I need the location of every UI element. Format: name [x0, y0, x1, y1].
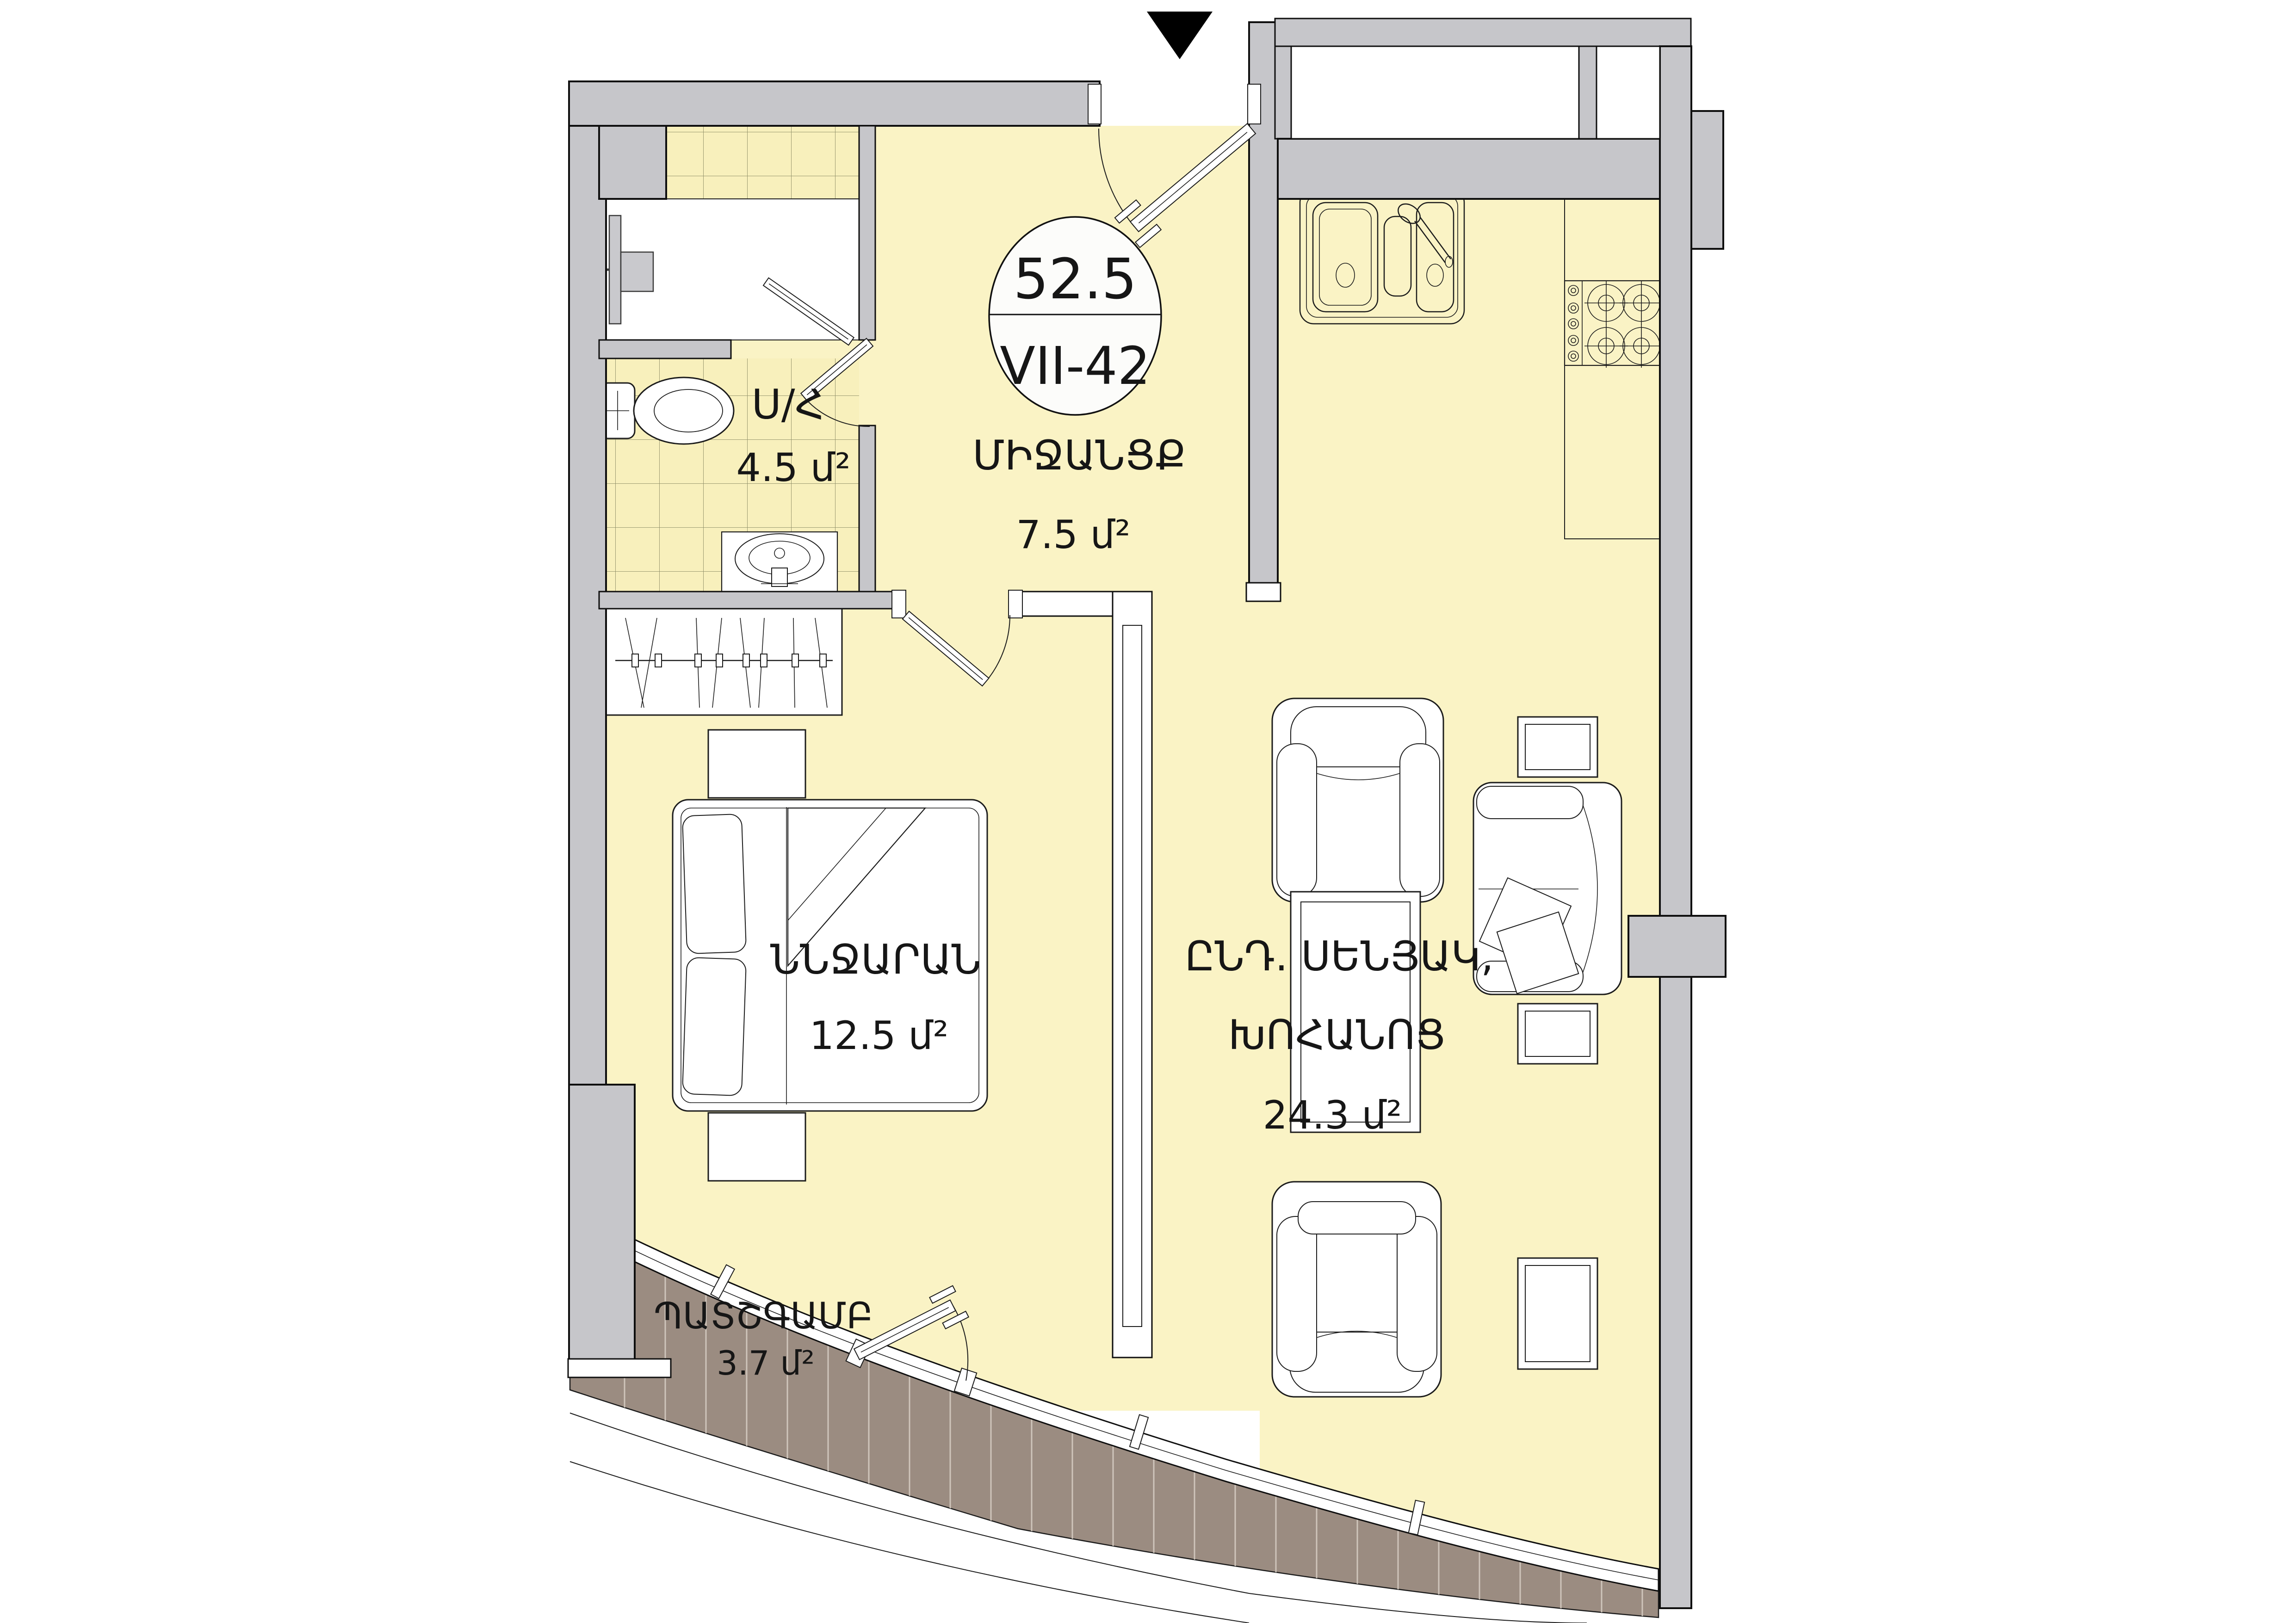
badge-unit-code: VII-42 [1000, 336, 1151, 396]
entrance-jamb-left [1088, 84, 1101, 124]
sofa [1473, 783, 1621, 994]
label-hallway-name: ՄԻՋԱՆՑՔ [972, 432, 1186, 479]
side-table-top [1518, 717, 1597, 777]
label-balcony-area: 3.7 մ² [717, 1344, 815, 1382]
label-living-name-1: ԸՆԴ. ՍԵՆՅԱԿ, [1185, 932, 1494, 980]
partition-hall-bedroom [1011, 592, 1113, 616]
pillow [682, 957, 746, 1096]
wall-shower-separator [599, 340, 731, 358]
wardrobe-body [606, 609, 842, 715]
badge-total-area: 52.5 [1013, 247, 1137, 312]
armchair-arm-left [1277, 1216, 1317, 1371]
toilet [600, 377, 734, 444]
label-bedroom-name: ՆՆՋԱՐԱՆ [770, 936, 981, 983]
shower-column [609, 216, 621, 324]
wall-kitchen-north [1278, 139, 1660, 199]
label-living-name-2: ԽՈՀԱՆՈՑ [1228, 1011, 1446, 1059]
window-north-right [1597, 46, 1660, 139]
wall-right-block [1691, 111, 1723, 249]
window-north-left [1291, 46, 1579, 139]
nightstand-top [708, 730, 805, 798]
floor-plan-drawing: 52.5 VII-42 Ս/Հ 4.5 մ² ՄԻՋԱՆՑՔ 7.5 մ² ՆՆ… [0, 0, 2296, 1623]
armchair-arm-right [1400, 744, 1440, 896]
wall-bath-corner-block [599, 126, 666, 199]
side-table-bottom [1518, 1258, 1597, 1369]
wall-left-jut [569, 1085, 635, 1375]
label-living-area: 24.3 մ² [1263, 1092, 1402, 1138]
washbasin [722, 532, 837, 592]
wall-north-outer-band [1275, 19, 1691, 46]
floor-plan-page: 52.5 VII-42 Ս/Հ 4.5 մ² ՄԻՋԱՆՑՔ 7.5 մ² ՆՆ… [0, 0, 2296, 1623]
toilet-bowl [634, 377, 734, 444]
armchair-top [1272, 698, 1443, 902]
wall-right [1660, 46, 1691, 1608]
label-bathroom-name: Ս/Հ [751, 381, 824, 428]
armchair-seat-front [1298, 1202, 1416, 1234]
side-table-inner [1525, 724, 1590, 770]
wall-bathroom-bottom [599, 592, 902, 609]
partition-bedroom-living [1113, 592, 1152, 1358]
pillow [682, 814, 746, 954]
entrance-jamb-right [1248, 84, 1261, 124]
label-bedroom-area: 12.5 մ² [810, 1013, 949, 1058]
label-bathroom-area: 4.5 մ² [736, 445, 850, 490]
armchair-arm-left [1277, 744, 1317, 896]
side-table-inner [1525, 1011, 1590, 1056]
sofa-arm-top [1477, 786, 1583, 819]
armchair-bottom [1272, 1182, 1441, 1397]
label-balcony-name: ՊԱՏՇԳԱՄԲ [654, 1296, 873, 1337]
window-divider [1579, 46, 1597, 139]
side-table-inner [1525, 1265, 1590, 1362]
side-table-mid [1518, 1004, 1597, 1064]
wall-left-end-cap [568, 1359, 671, 1377]
unit-badge: 52.5 VII-42 [989, 217, 1161, 415]
bedroom-jamb-left [892, 590, 906, 618]
entrance-marker-triangle-icon [1147, 12, 1213, 59]
wall-top [569, 81, 1100, 126]
wardrobe [606, 609, 842, 715]
wall-right-column [1628, 916, 1726, 977]
divider-end-cap [1246, 583, 1281, 601]
window-jamb-left [1275, 46, 1291, 139]
wall-bathroom-right-upper [859, 126, 875, 340]
nightstand-bottom [708, 1113, 805, 1181]
label-hallway-area: 7.5 մ² [1016, 512, 1130, 557]
bath-tile-strip-grid [666, 126, 859, 199]
bedroom-jamb-right [1009, 590, 1022, 618]
armchair-arm-right [1397, 1216, 1437, 1371]
wall-bathroom-right-lower [859, 426, 875, 609]
shower-head [621, 252, 653, 291]
